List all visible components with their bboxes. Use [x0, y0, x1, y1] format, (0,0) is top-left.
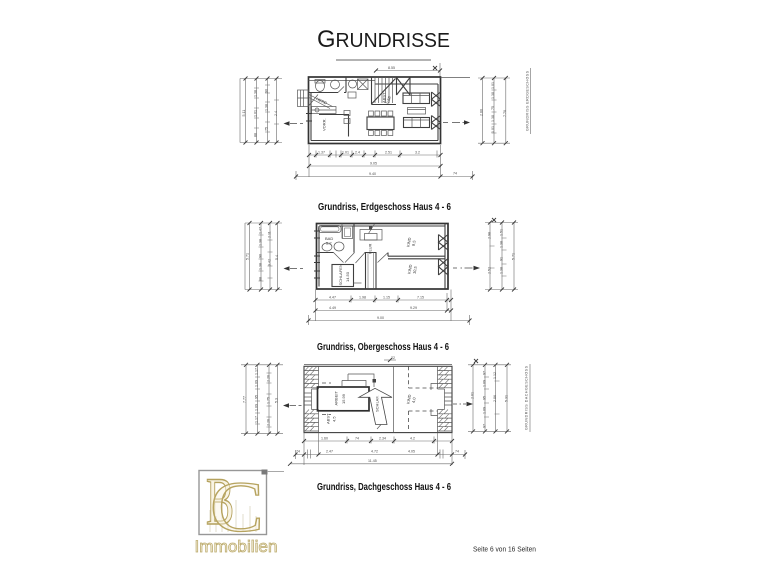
svg-text:8.55: 8.55	[388, 66, 395, 70]
svg-text:1.47: 1.47	[259, 227, 263, 234]
svg-text:2.47: 2.47	[326, 450, 333, 454]
svg-text:2.4: 2.4	[355, 151, 360, 155]
svg-text:90: 90	[265, 89, 269, 93]
svg-text:75: 75	[491, 106, 495, 110]
svg-text:Grundriss, Erdgeschoss Haus 4: Grundriss, Erdgeschoss Haus 4 - 6	[318, 201, 451, 213]
svg-text:7.77: 7.77	[243, 396, 247, 403]
svg-text:1.17: 1.17	[255, 416, 259, 423]
svg-text:1.17: 1.17	[255, 368, 259, 375]
svg-text:14.50: 14.50	[345, 271, 350, 282]
svg-text:74: 74	[453, 172, 457, 176]
svg-text:1.75: 1.75	[267, 397, 271, 404]
svg-text:1.38: 1.38	[259, 263, 263, 270]
svg-text:9.40: 9.40	[369, 172, 376, 176]
svg-text:22: 22	[391, 356, 395, 360]
svg-text:95: 95	[255, 395, 259, 399]
svg-text:2.98: 2.98	[488, 232, 492, 239]
svg-text:2.26: 2.26	[267, 419, 271, 426]
svg-text:95: 95	[483, 396, 487, 400]
svg-text:5.4: 5.4	[275, 255, 279, 260]
svg-text:7.70: 7.70	[503, 110, 507, 117]
svg-text:GRUNDRISSE: GRUNDRISSE	[317, 26, 450, 53]
svg-text:97: 97	[483, 371, 487, 375]
svg-text:Seite 6 von 16 Seiten: Seite 6 von 16 Seiten	[473, 545, 536, 554]
svg-text:C: C	[210, 467, 264, 547]
svg-text:1.38: 1.38	[491, 92, 495, 99]
svg-text:4.2: 4.2	[410, 437, 415, 441]
svg-text:4.49: 4.49	[329, 306, 336, 310]
svg-text:SCHLAFEN: SCHLAFEN	[338, 264, 343, 285]
svg-text:GRUNDRISS ERDGESCHOSS: GRUNDRISS ERDGESCHOSS	[526, 70, 530, 131]
svg-text:2.60: 2.60	[480, 109, 484, 116]
svg-text:3.42: 3.42	[268, 259, 272, 266]
svg-text:97: 97	[483, 424, 487, 428]
svg-text:FLUR: FLUR	[368, 243, 373, 254]
svg-text:1.01: 1.01	[491, 126, 495, 133]
svg-text:9.29: 9.29	[410, 306, 417, 310]
svg-text:5.11: 5.11	[242, 110, 246, 117]
svg-text:1.09: 1.09	[483, 407, 487, 414]
svg-text:2.61: 2.61	[471, 392, 475, 399]
svg-text:7.15: 7.15	[417, 296, 424, 300]
svg-text:1.12: 1.12	[493, 372, 497, 379]
svg-text:2.11: 2.11	[268, 231, 272, 238]
svg-text:1.01: 1.01	[254, 110, 258, 117]
svg-text:1.09: 1.09	[255, 404, 259, 411]
svg-text:1.38: 1.38	[259, 239, 263, 246]
svg-text:1.01: 1.01	[491, 82, 495, 89]
svg-text:9.00: 9.00	[377, 316, 384, 320]
svg-text:SCHLAF.: SCHLAF.	[375, 396, 380, 412]
svg-text:4.47: 4.47	[329, 296, 336, 300]
svg-text:5.3: 5.3	[275, 398, 279, 403]
svg-text:1.38: 1.38	[265, 104, 269, 111]
svg-text:2.26: 2.26	[267, 375, 271, 382]
svg-text:74: 74	[355, 437, 359, 441]
svg-text:2.34: 2.34	[379, 437, 386, 441]
svg-text:GRUNDRISS DACHGESCHOSS: GRUNDRISS DACHGESCHOSS	[525, 365, 529, 430]
svg-text:3.2: 3.2	[415, 151, 420, 155]
svg-text:1.09: 1.09	[255, 380, 259, 387]
svg-text:1.38: 1.38	[500, 241, 504, 248]
svg-text:74: 74	[296, 450, 300, 454]
svg-text:1.38: 1.38	[500, 267, 504, 274]
svg-text:75: 75	[265, 127, 269, 131]
svg-text:4.05: 4.05	[408, 450, 415, 454]
svg-text:2.86: 2.86	[493, 395, 497, 402]
svg-text:11.45: 11.45	[368, 459, 377, 463]
svg-text:2.52: 2.52	[488, 267, 492, 274]
svg-text:88: 88	[259, 277, 263, 281]
svg-text:5.71: 5.71	[246, 253, 250, 260]
svg-text:5.2: 5.2	[326, 241, 332, 246]
svg-text:1.51: 1.51	[500, 229, 504, 236]
svg-text:1.15: 1.15	[383, 296, 390, 300]
svg-text:Grundriss, Obergeschoss Haus 4: Grundriss, Obergeschoss Haus 4 - 6	[317, 341, 449, 353]
svg-text:91: 91	[500, 257, 504, 261]
svg-text:1.38: 1.38	[491, 115, 495, 122]
svg-text:5.71: 5.71	[512, 253, 516, 260]
svg-text:2.51: 2.51	[385, 151, 392, 155]
svg-text:1.37: 1.37	[318, 151, 325, 155]
svg-text:90: 90	[259, 254, 263, 258]
svg-text:ARBEIT: ARBEIT	[334, 390, 339, 405]
svg-text:1.98: 1.98	[359, 296, 366, 300]
svg-text:1.38: 1.38	[254, 90, 258, 97]
svg-text:88: 88	[254, 133, 258, 137]
svg-text:Grundriss, Dachgeschoss Haus 4: Grundriss, Dachgeschoss Haus 4 - 6	[317, 481, 451, 493]
svg-text:5.31: 5.31	[505, 395, 509, 402]
svg-text:1.01: 1.01	[342, 151, 349, 155]
svg-text:1.60: 1.60	[321, 437, 328, 441]
svg-text:1.09: 1.09	[483, 380, 487, 387]
svg-text:74: 74	[455, 450, 459, 454]
svg-text:2.4: 2.4	[274, 111, 278, 116]
svg-text:Immobilien: Immobilien	[195, 538, 278, 556]
svg-text:4.5: 4.5	[332, 416, 337, 422]
svg-text:VORR.: VORR.	[322, 118, 327, 131]
svg-text:4.72: 4.72	[371, 450, 378, 454]
svg-text:9.05: 9.05	[370, 162, 377, 166]
svg-text:15.99: 15.99	[341, 393, 346, 404]
